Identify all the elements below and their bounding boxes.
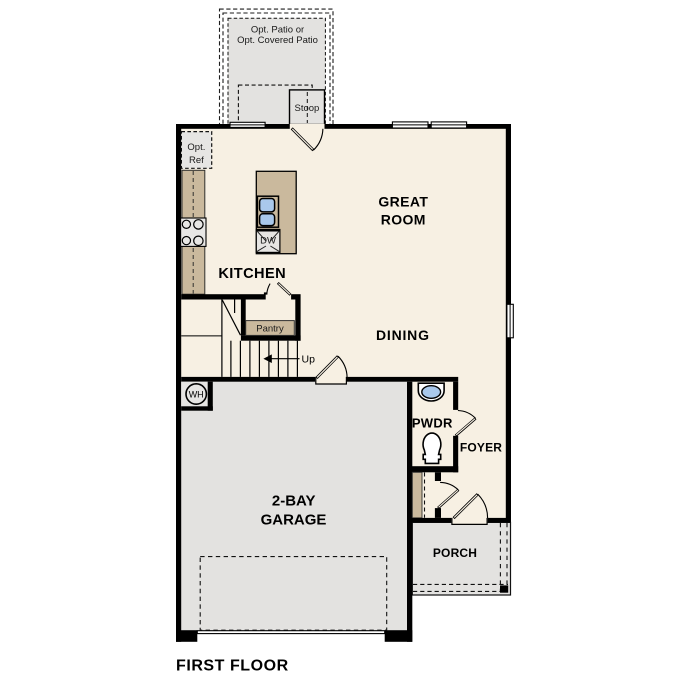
svg-text:Opt. Patio or: Opt. Patio or <box>251 24 304 35</box>
svg-text:Opt. Covered Patio: Opt. Covered Patio <box>237 35 318 46</box>
svg-text:Opt.: Opt. <box>187 142 205 153</box>
svg-text:FOYER: FOYER <box>460 440 502 454</box>
svg-text:KITCHEN: KITCHEN <box>218 266 286 282</box>
svg-text:Up: Up <box>302 354 316 366</box>
svg-text:PORCH: PORCH <box>433 546 477 560</box>
svg-text:Stoop: Stoop <box>294 103 319 114</box>
svg-text:FIRST FLOOR: FIRST FLOOR <box>176 658 289 675</box>
svg-text:Pantry: Pantry <box>256 324 284 335</box>
svg-text:DW: DW <box>260 236 276 247</box>
svg-text:DINING: DINING <box>376 327 430 343</box>
svg-text:WH: WH <box>189 389 204 399</box>
svg-text:2-BAY: 2-BAY <box>272 492 316 509</box>
svg-text:PWDR: PWDR <box>412 416 453 431</box>
svg-text:ROOM: ROOM <box>381 212 426 228</box>
svg-text:GARAGE: GARAGE <box>261 512 327 529</box>
svg-text:GREAT: GREAT <box>378 193 428 209</box>
svg-text:Ref: Ref <box>189 155 204 166</box>
